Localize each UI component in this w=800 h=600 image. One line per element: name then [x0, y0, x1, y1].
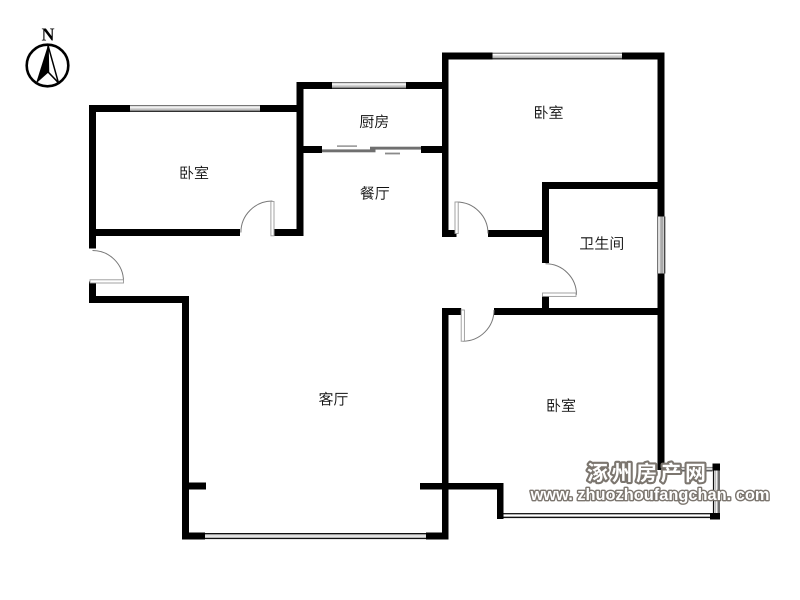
svg-text:N: N	[42, 25, 55, 45]
svg-text:www. zhuozhoufangchan. com: www. zhuozhoufangchan. com	[530, 486, 770, 504]
